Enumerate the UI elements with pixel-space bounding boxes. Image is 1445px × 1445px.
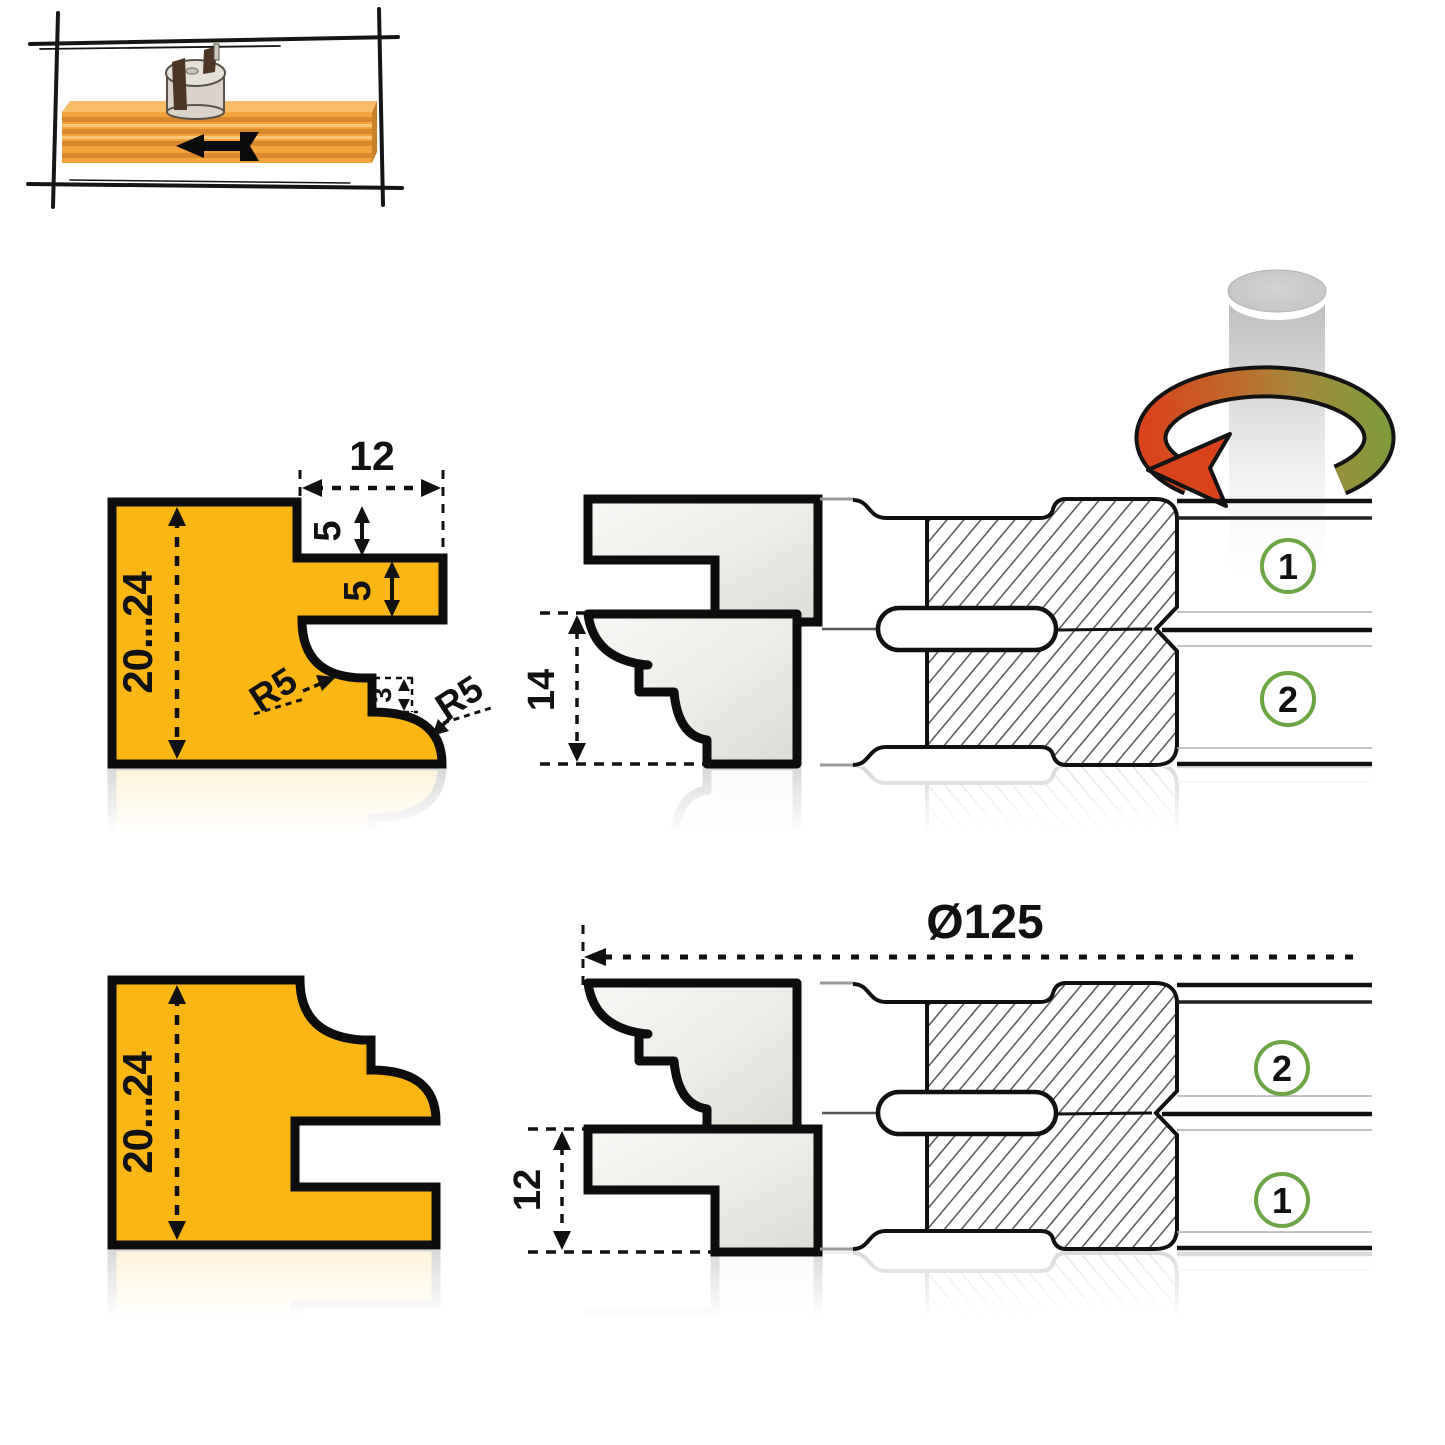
dim-label: 20...24	[114, 1051, 161, 1174]
spindle-cylinder	[1227, 270, 1327, 575]
row-badge-bottom-2: 2	[1256, 1042, 1308, 1094]
profile-top-shape	[112, 502, 443, 764]
dim-label: 12	[349, 433, 395, 479]
row-badge-bottom-1: 1	[1256, 1174, 1308, 1226]
dim-round-radius: R5	[428, 667, 491, 736]
cutterhead-bottom-graphic	[588, 983, 1372, 1252]
dim-label: 12	[507, 1169, 549, 1211]
badge-number: 1	[1278, 546, 1298, 587]
badge-number: 2	[1278, 679, 1298, 720]
dim-label: 3	[367, 687, 397, 702]
badge-number: 2	[1272, 1048, 1292, 1089]
mini-cutterhead	[166, 44, 225, 119]
badge-number: 1	[1272, 1180, 1292, 1221]
dim-label: 5	[337, 580, 379, 601]
row-badge-top-2: 2	[1262, 673, 1314, 725]
dim-label: Ø125	[926, 896, 1043, 949]
dim-label: 20...24	[114, 571, 161, 694]
cutterhead-feed-direction-icon	[28, 9, 402, 207]
reflection-bottom	[112, 1247, 1372, 1445]
profile-drawing-top: 12 5 5 20...24 R5	[112, 433, 491, 764]
cutterhead-assembly-bottom: 12 2 1	[507, 983, 1372, 1252]
dim-label: 5	[307, 520, 349, 541]
row-badge-top-1: 1	[1262, 540, 1314, 592]
dim-label: 14	[521, 669, 563, 711]
dim-rebate-depth: 5	[307, 506, 370, 556]
mini-knife-front	[172, 58, 187, 110]
cutterhead-diagram: 12 5 5 20...24 R5	[0, 0, 1445, 1445]
profile-drawing-bottom: 20...24	[112, 980, 436, 1245]
diagram-page: 12 5 5 20...24 R5	[0, 0, 1445, 1445]
